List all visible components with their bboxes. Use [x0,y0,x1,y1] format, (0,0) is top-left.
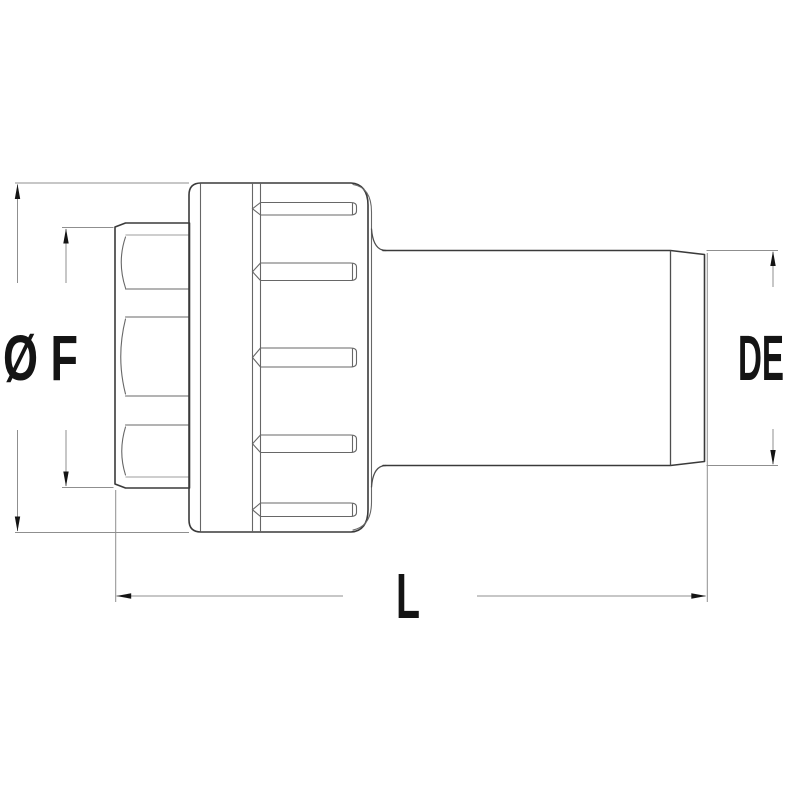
spigot-tube [383,251,705,466]
hex-nut [115,223,190,488]
collar-slot-2 [253,263,357,281]
label-f-diameter: Ø F [3,322,78,394]
nut-tangent-lines [126,235,190,477]
drawing-canvas: Ø F DE L [0,0,800,800]
arrow-up-icon [770,251,775,266]
collar-tube-fillet-curves [372,229,387,487]
ribbed-collar [189,183,386,532]
pipe-fitting-technical-drawing: Ø F DE L [0,0,800,800]
collar-slot-5 [253,503,357,517]
arrow-up-icon [63,229,68,244]
nut-division-lines [126,289,190,425]
collar-edge-lines [201,184,261,532]
arrow-right-icon [691,593,706,598]
collar-slot-1 [253,203,357,216]
arrow-left-icon [116,593,131,598]
collar-outline [189,183,368,532]
label-length: L [396,560,420,632]
nut-face-arcs [121,237,126,475]
arrow-down-icon [15,517,20,532]
tube-outline [383,251,705,466]
arrow-down-icon [770,450,775,465]
arrow-up-icon [15,184,20,199]
collar-slot-4 [253,435,357,453]
dimension-l: L [116,253,708,632]
collar-slot-3 [253,348,357,367]
l-extension-lines [116,253,708,602]
dimension-de: DE [707,251,785,466]
nut-outline [115,223,190,488]
label-de-diameter: DE [738,322,784,394]
arrow-down-icon [63,472,68,487]
